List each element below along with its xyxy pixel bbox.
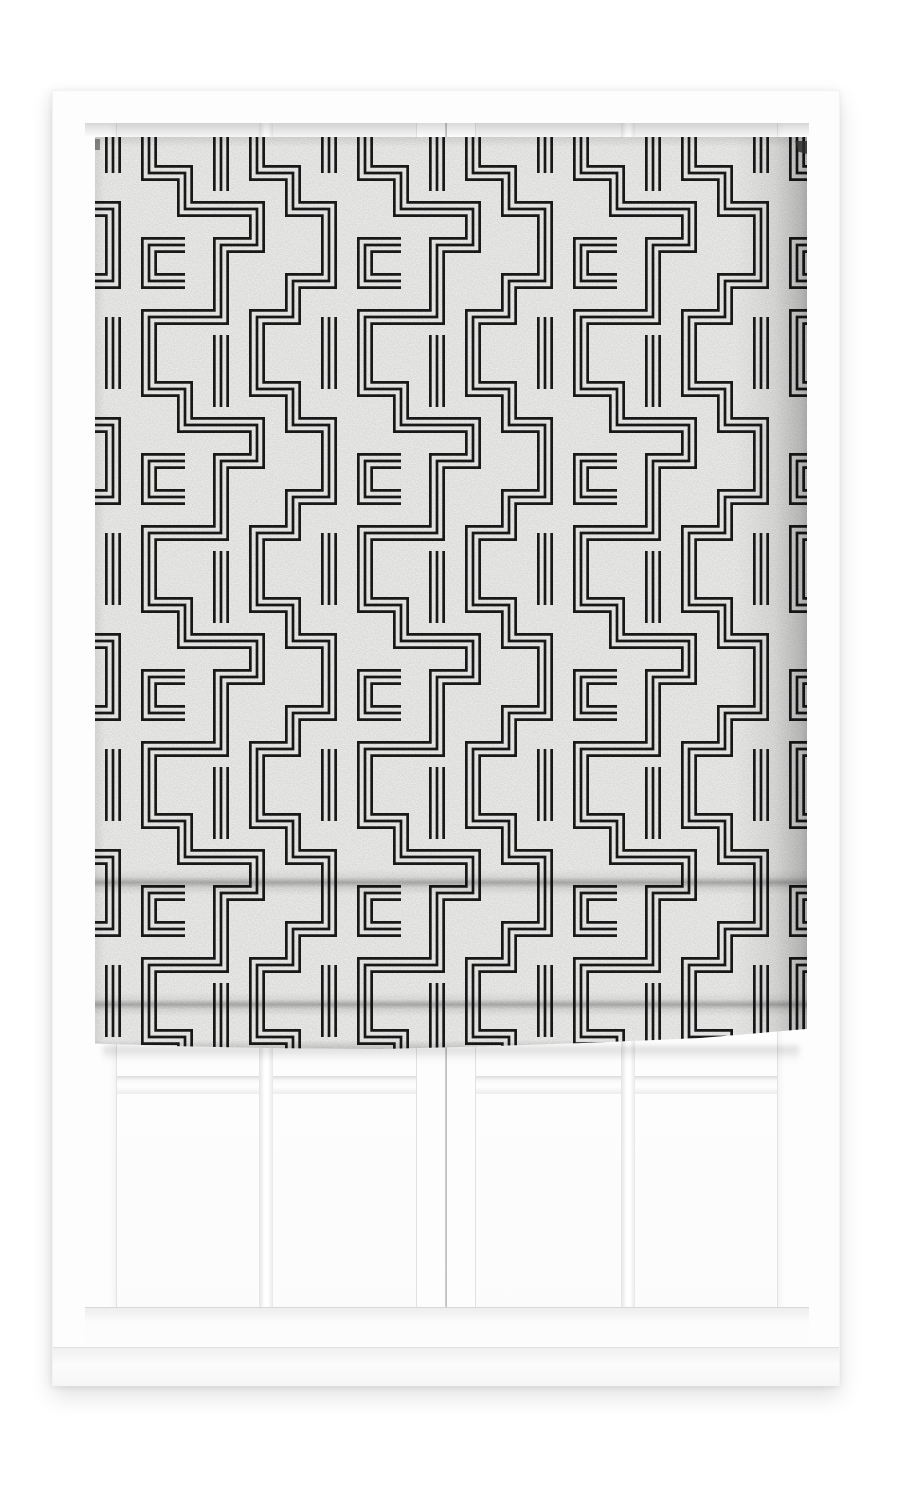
fabric-texture (95, 137, 807, 1049)
blind-cast-shadow (103, 1046, 799, 1061)
maze-pattern (95, 137, 807, 1049)
mounting-bracket-left (95, 139, 100, 150)
window-frame (52, 90, 840, 1386)
roman-blind (95, 137, 807, 1049)
product-photo (0, 0, 900, 1500)
sash-bottom-rail (85, 1307, 809, 1347)
window-sill (53, 1347, 839, 1386)
